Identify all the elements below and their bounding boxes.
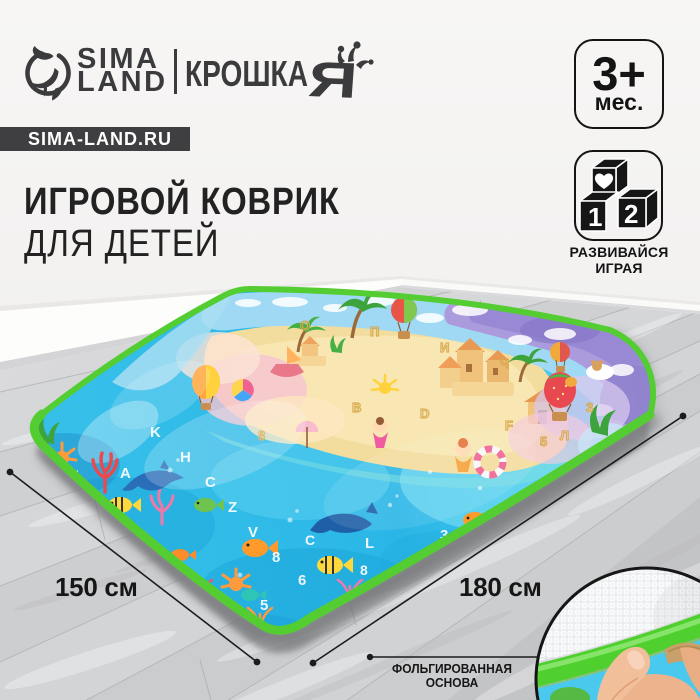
svg-text:K: K bbox=[150, 424, 161, 441]
svg-text:Л: Л bbox=[560, 428, 569, 443]
svg-text:И: И bbox=[440, 340, 449, 355]
svg-text:D: D bbox=[420, 406, 429, 421]
svg-text:B: B bbox=[352, 400, 361, 415]
svg-text:O: O bbox=[300, 318, 310, 333]
svg-text:5: 5 bbox=[540, 434, 547, 449]
svg-text:C: C bbox=[305, 532, 315, 548]
svg-text:П: П bbox=[370, 324, 379, 339]
svg-text:F: F bbox=[505, 418, 513, 433]
svg-text:V: V bbox=[248, 524, 258, 541]
svg-text:L: L bbox=[365, 535, 374, 552]
svg-text:5: 5 bbox=[260, 597, 268, 614]
svg-text:Z: Z bbox=[228, 499, 237, 516]
svg-text:Ч: Ч bbox=[500, 356, 509, 371]
svg-text:A: A bbox=[120, 465, 131, 482]
svg-text:6: 6 bbox=[298, 572, 306, 589]
svg-text:8: 8 bbox=[272, 549, 280, 566]
svg-text:8: 8 bbox=[360, 562, 368, 578]
svg-text:3: 3 bbox=[586, 400, 593, 415]
